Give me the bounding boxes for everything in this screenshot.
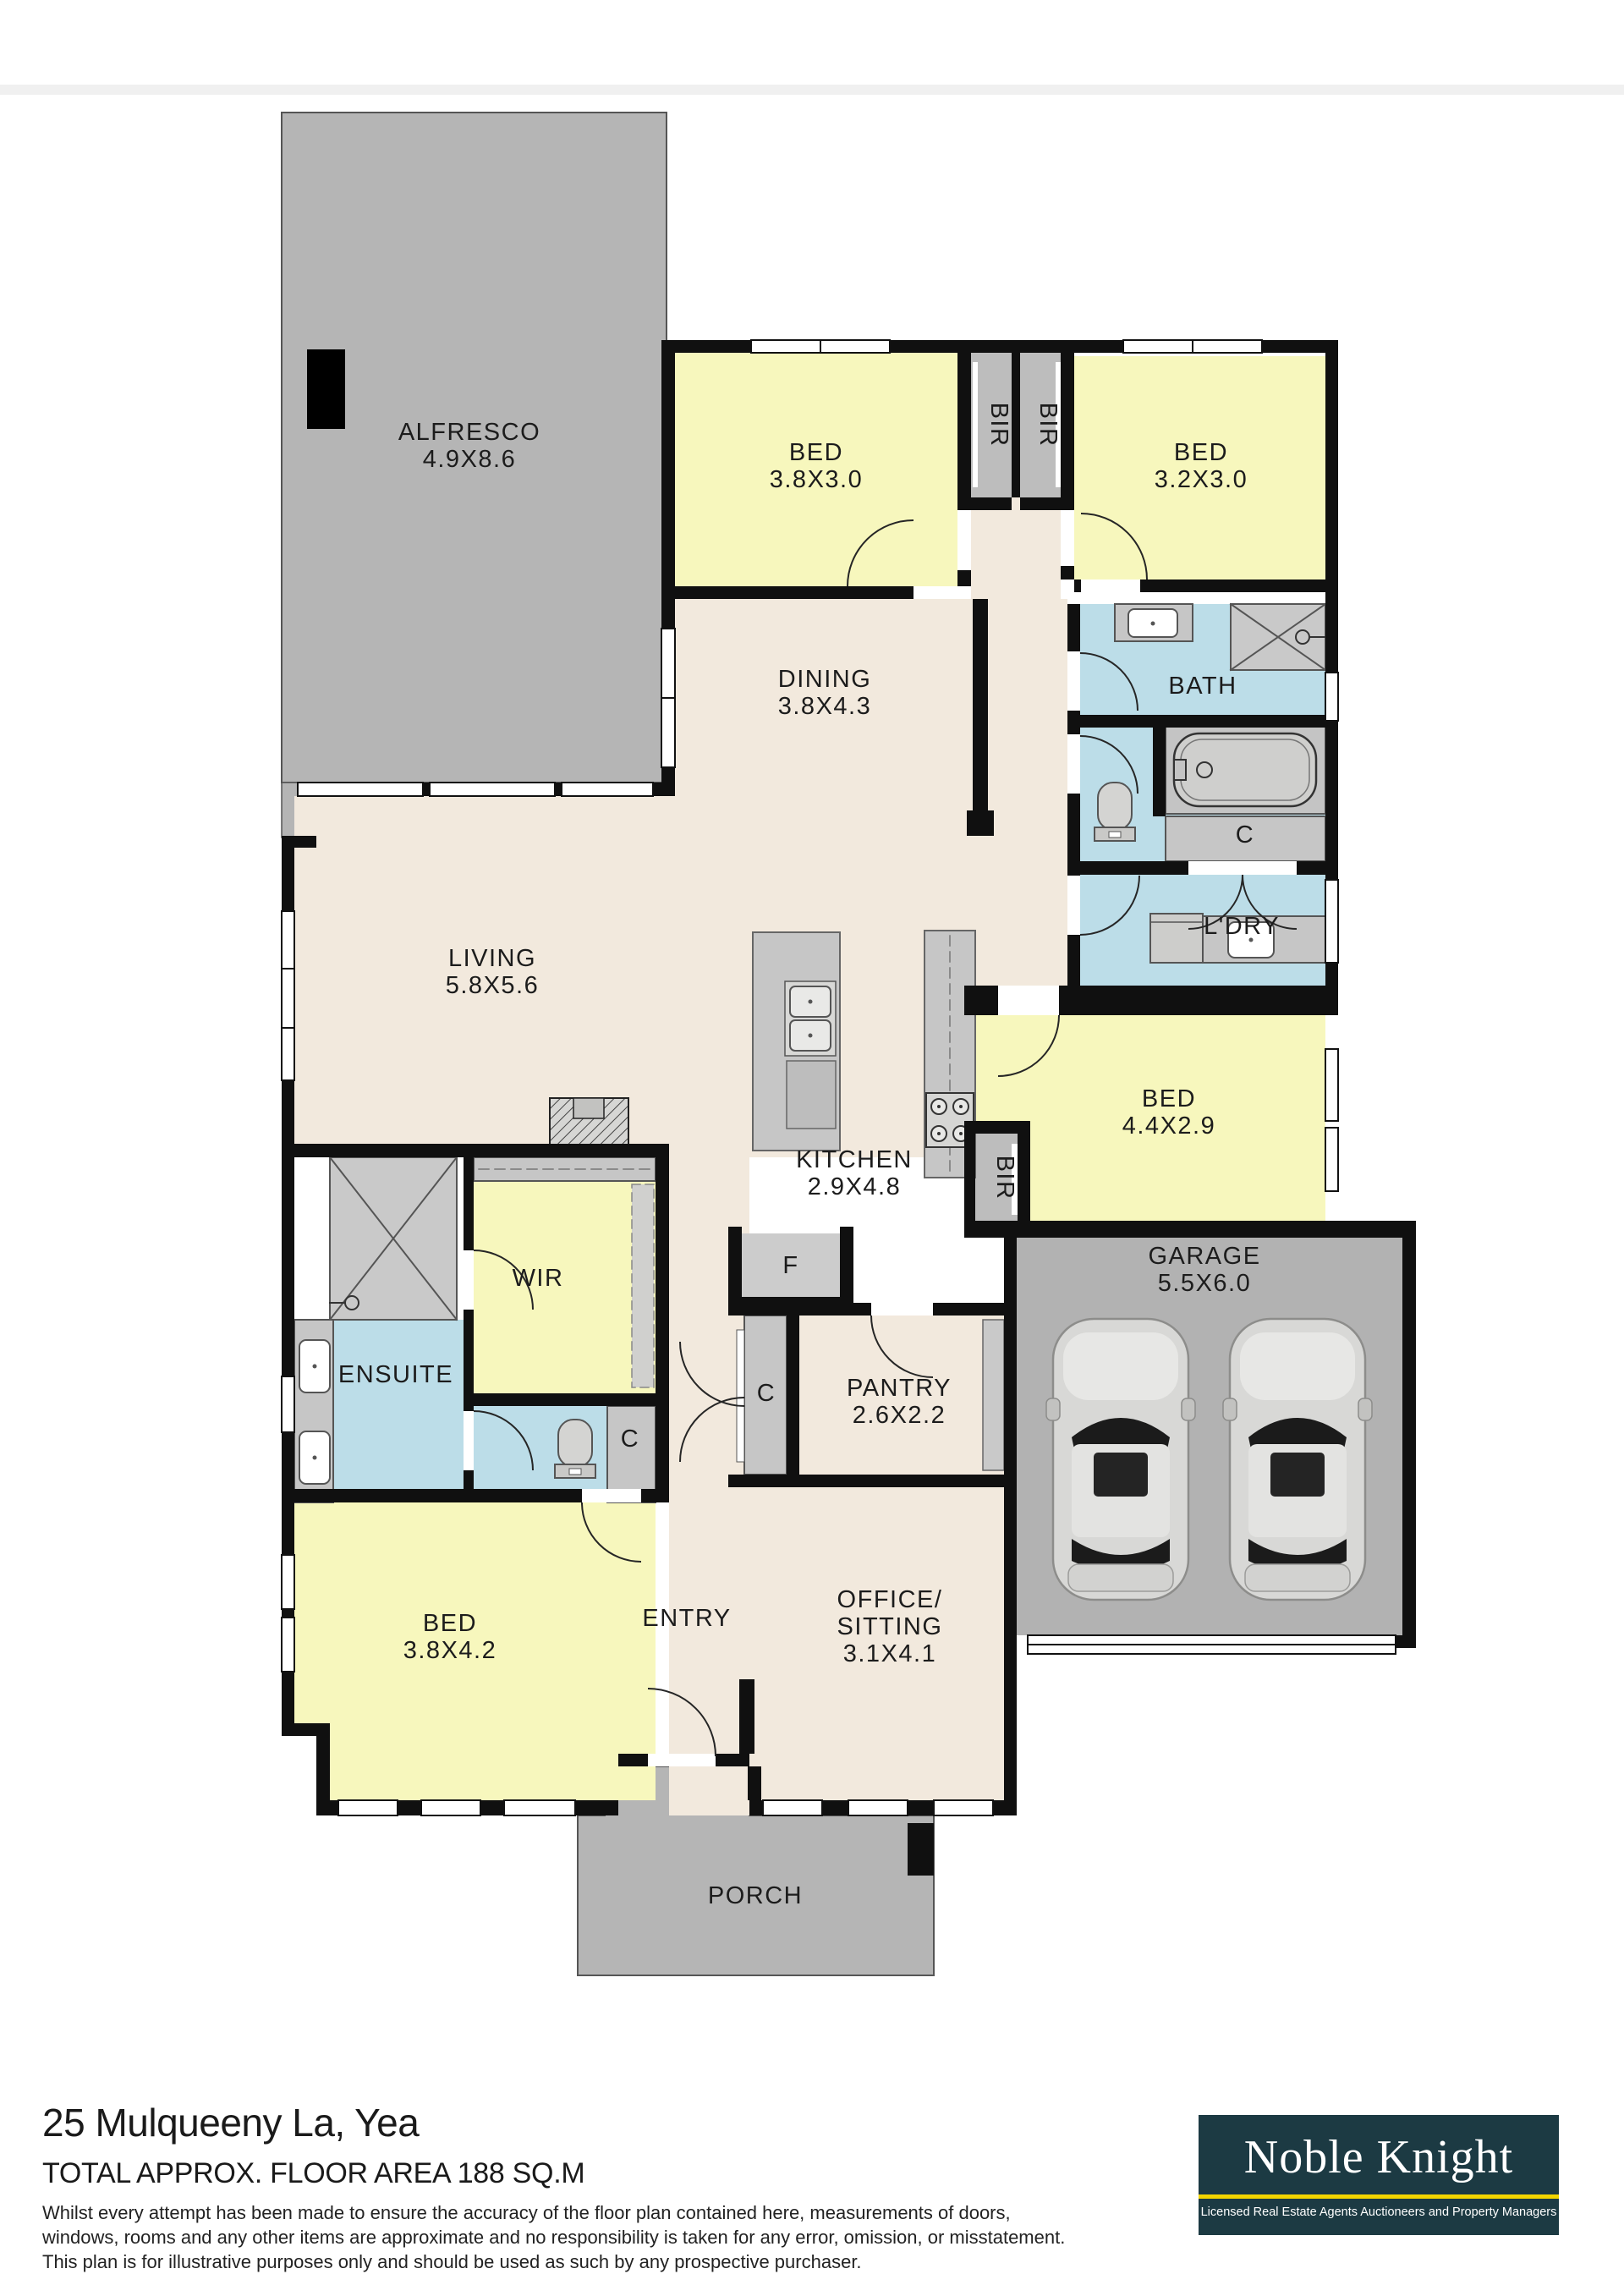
room-label-fridge: F <box>782 1252 798 1279</box>
room-label-kitchen: KITCHEN2.9X4.8 <box>796 1146 913 1200</box>
floor-plan: ALFRESCO4.9X8.6BED3.8X3.0BED3.2X3.0DININ… <box>0 0 1624 2296</box>
disclaimer-line: Whilst every attempt has been made to en… <box>42 2200 1065 2225</box>
room-label-bir-3: BIR <box>991 1156 1018 1200</box>
room-label-cupboard-ensuite: C <box>621 1425 639 1453</box>
room-label-wir: WIR <box>513 1265 564 1292</box>
room-label-porch: PORCH <box>708 1882 803 1909</box>
room-label-bath: BATH <box>1168 673 1237 700</box>
room-label-bir-1: BIR <box>985 403 1012 448</box>
agency-name: Noble Knight <box>1199 2115 1559 2184</box>
dishwasher <box>787 1061 836 1129</box>
room-label-entry: ENTRY <box>642 1605 731 1632</box>
ensuite-cupboard <box>607 1406 656 1502</box>
alfresco-post <box>307 349 345 429</box>
room-label-garage: GARAGE5.5X6.0 <box>1148 1243 1260 1297</box>
disclaimer-line: windows, rooms and any other items are a… <box>42 2225 1065 2249</box>
toilet <box>1095 783 1135 841</box>
disclaimer-text: Whilst every attempt has been made to en… <box>42 2200 1065 2274</box>
laundry-washer <box>1150 914 1203 963</box>
room-label-bir-2: BIR <box>1034 403 1062 448</box>
property-address: 25 Mulqueeny La, Yea <box>42 2100 1065 2145</box>
floor-area-total: TOTAL APPROX. FLOOR AREA 188 SQ.M <box>42 2157 1065 2190</box>
room-label-pantry: PANTRY2.6X2.2 <box>847 1375 952 1429</box>
room-label-office-sitting: OFFICE/SITTING3.1X4.1 <box>837 1586 943 1667</box>
ensuite-toilet <box>555 1420 595 1478</box>
agency-logo: Noble Knight Licensed Real Estate Agents… <box>1199 2115 1559 2235</box>
room-label-living: LIVING5.8X5.6 <box>446 945 539 999</box>
room-label-laundry: L'DRY <box>1204 913 1280 940</box>
room-label-ensuite: ENSUITE <box>338 1361 453 1388</box>
bathtub <box>1174 733 1316 806</box>
footer: 25 Mulqueeny La, Yea TOTAL APPROX. FLOOR… <box>42 2100 1065 2274</box>
room-label-dining: DINING3.8X4.3 <box>778 666 872 720</box>
room-label-cupboard-bath: C <box>1236 821 1254 849</box>
alfresco-area <box>282 113 667 838</box>
disclaimer-line: This plan is for illustrative purposes o… <box>42 2249 1065 2274</box>
corridor-floor <box>988 796 1067 1015</box>
agency-tagline: Licensed Real Estate Agents Auctioneers … <box>1199 2205 1559 2219</box>
room-label-cupboard-entry: C <box>757 1380 776 1407</box>
scan-artifact-band <box>0 85 1624 95</box>
hall-floor <box>971 497 1061 599</box>
logo-accent-rule <box>1199 2194 1559 2199</box>
pantry-shelf <box>983 1320 1004 1470</box>
floorplan-page: ALFRESCO4.9X8.6BED3.8X3.0BED3.2X3.0DININ… <box>0 0 1624 2296</box>
wir-floor <box>474 1181 656 1393</box>
